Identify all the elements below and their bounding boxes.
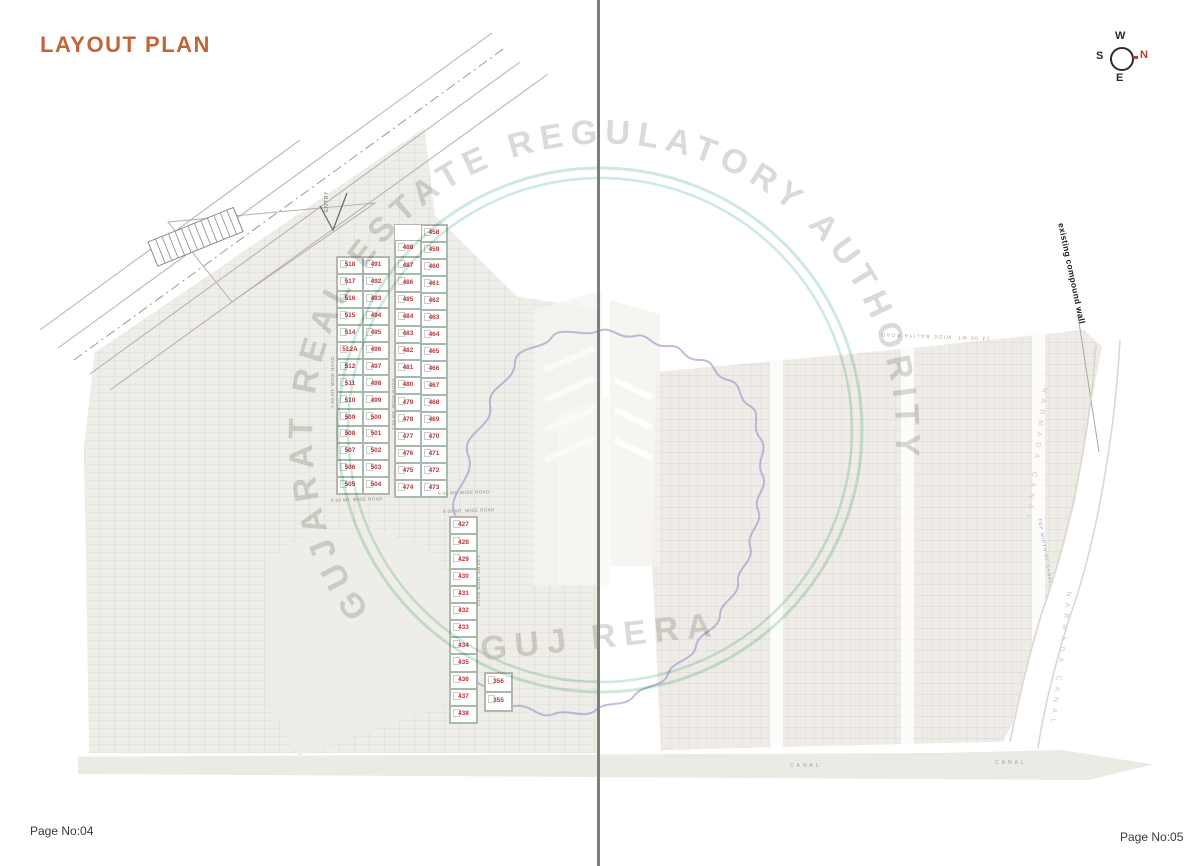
layout-plan-sheet: 518517516515514512A512511510509508507506… [0, 0, 1200, 866]
page-number-left: Page No:04 [30, 824, 93, 838]
compass-south: S [1096, 50, 1103, 62]
compass-east: E [1116, 72, 1123, 84]
compass-west: W [1115, 30, 1125, 42]
watermark-inner-ring [348, 178, 852, 682]
watermark-outer-ring [338, 168, 862, 692]
compass-north: N [1140, 49, 1148, 61]
page-divider [597, 0, 600, 866]
gujrera-watermark: GUJARAT REAL ESTATE REGULATORY AUTHORITY… [0, 0, 1200, 866]
page-number-right: Page No:05 [1120, 830, 1183, 844]
page-title: LAYOUT PLAN [40, 32, 211, 58]
compass-icon: W S E N [1088, 28, 1162, 94]
compass-ring [1110, 47, 1134, 71]
watermark-center-text: GUJ RERA [479, 606, 721, 669]
compass-north-pointer [1133, 56, 1138, 59]
